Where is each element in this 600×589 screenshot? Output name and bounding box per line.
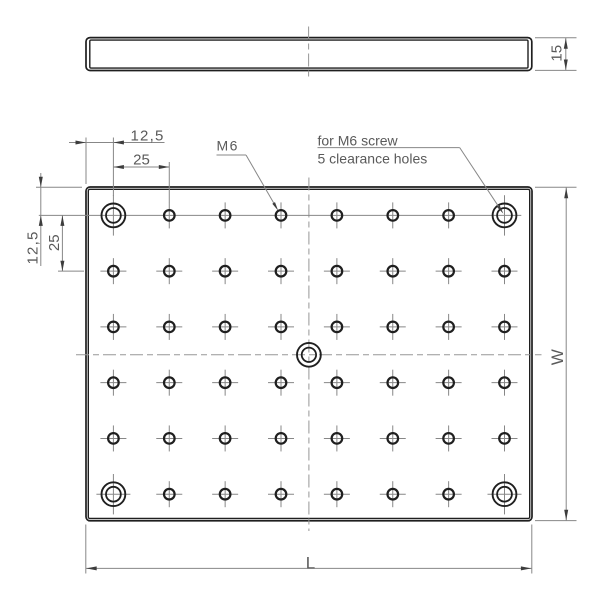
svg-text:15: 15 (549, 45, 566, 62)
svg-text:5 clearance holes: 5 clearance holes (318, 151, 428, 167)
svg-text:L: L (306, 554, 315, 573)
svg-text:12,5: 12,5 (25, 231, 42, 265)
svg-text:M6: M6 (217, 138, 239, 154)
svg-text:25: 25 (46, 234, 63, 251)
svg-text:W: W (548, 349, 567, 365)
svg-text:for M6 screw: for M6 screw (318, 133, 399, 149)
svg-text:12,5: 12,5 (131, 127, 165, 144)
svg-text:25: 25 (133, 151, 150, 168)
